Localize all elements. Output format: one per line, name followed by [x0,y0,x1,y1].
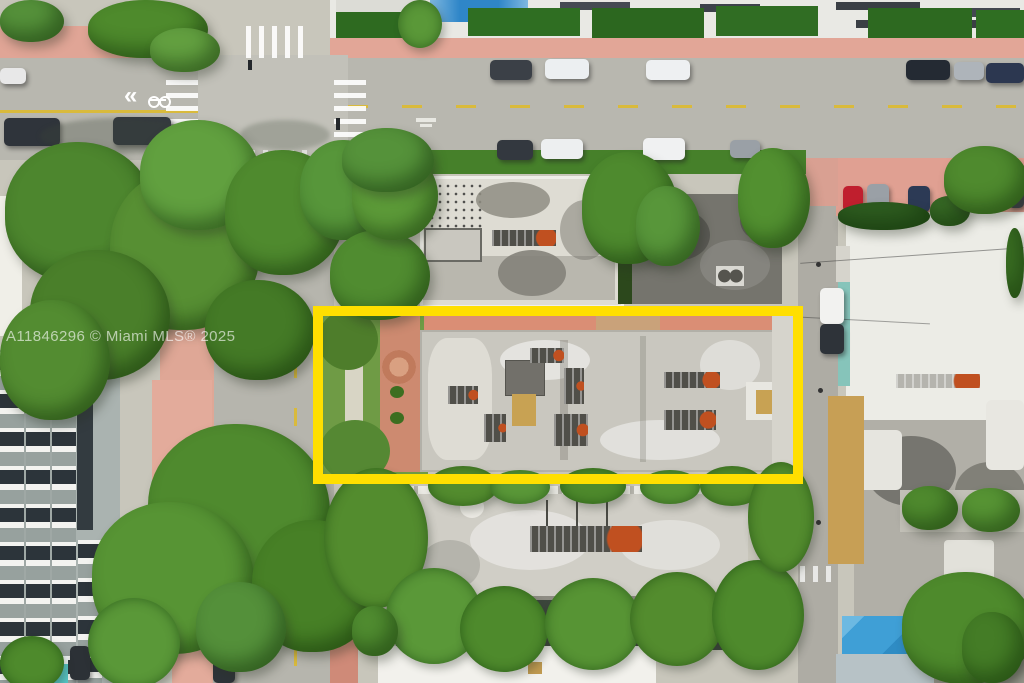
building-a-roof-structure [424,228,482,262]
tan-building [828,396,864,564]
tree-canopy [944,146,1024,214]
hedge-row-alley [838,202,930,230]
parked-car [70,646,90,680]
bottom-roof-tan-vent [528,662,542,674]
hedge [868,8,972,38]
bike-wheel [159,96,171,108]
palm-top [398,0,442,48]
palm-top [0,636,64,683]
south-roof-hvac-row [530,526,642,552]
building-b-hvac-unit [716,266,744,286]
hedge [592,8,704,38]
white-roof-ac-strip [896,374,980,388]
parked-car [541,139,583,159]
parked-car [646,60,690,80]
bike-marking-east [416,118,436,122]
palm-cluster [630,572,724,666]
bike-frame [150,99,166,101]
palm-top [88,598,180,683]
parked-pickup [820,288,844,324]
utility-pole [816,520,821,525]
parked-car [490,60,532,80]
palm-cluster [545,578,641,670]
gray-roof-white-patch [986,400,1024,470]
parked-car [986,63,1024,83]
property-highlight-box [313,306,803,484]
hedge [716,6,818,36]
bike-marking-east [420,124,432,127]
tree-canopy [0,300,110,420]
tree-canopy [342,128,434,192]
parked-car [906,60,950,80]
sharrow-chevron: « [124,84,150,108]
aerial-photo: « A11846296 © Miami MLS® 2025 [0,0,1024,683]
tree-canopy [0,0,64,42]
shrub [352,606,398,656]
parked-car [497,140,533,160]
tree-canopy [636,186,700,266]
courtyard-tree [902,486,958,530]
gray-roof-white-patch [858,430,902,490]
tree-canopy [1006,228,1024,298]
palm-cluster [460,586,548,672]
alley-crosswalk [800,566,836,582]
parked-suv [820,324,844,354]
hedge [976,10,1024,38]
crosswalk-north [246,26,304,58]
traffic-signal-pole [248,60,252,70]
south-roof-pipe [546,500,548,526]
utility-pole [818,388,823,393]
parked-car [0,68,26,84]
tree-canopy [738,148,810,248]
center-dash-line [348,105,1024,108]
south-roof-pipe [606,500,608,526]
tree-canopy [196,582,286,672]
parked-car [954,62,984,80]
alley-utility-box [836,246,850,282]
building-a-hvac-row [492,230,556,246]
white-roof-building-right [846,212,1024,420]
building-a-stain [498,250,566,296]
building-a-stain [476,182,550,218]
traffic-signal-pole [336,118,340,130]
mls-watermark: A11846296 © Miami MLS® 2025 [6,328,235,345]
palm-cluster [712,560,804,670]
tree-canopy [150,28,220,72]
tree-canopy [962,612,1024,683]
parked-car [545,59,589,79]
utility-pole [816,262,821,267]
tree-shadow [240,120,330,150]
hedge [468,8,580,36]
courtyard-tree [962,488,1020,532]
